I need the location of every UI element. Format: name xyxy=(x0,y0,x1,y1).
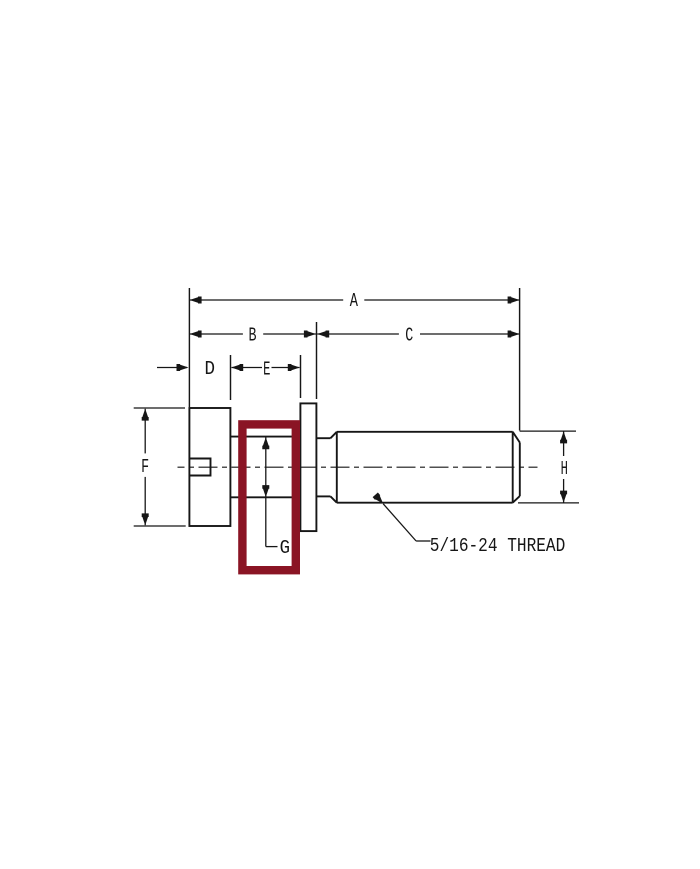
svg-text:B: B xyxy=(249,324,257,346)
svg-text:F: F xyxy=(141,456,149,478)
svg-text:H: H xyxy=(561,458,568,480)
svg-text:G: G xyxy=(280,537,290,559)
svg-text:E: E xyxy=(263,359,270,381)
svg-text:A: A xyxy=(350,290,359,312)
svg-text:C: C xyxy=(405,324,413,346)
svg-text:5/16-24 THREAD: 5/16-24 THREAD xyxy=(430,535,566,557)
svg-text:D: D xyxy=(205,358,216,380)
